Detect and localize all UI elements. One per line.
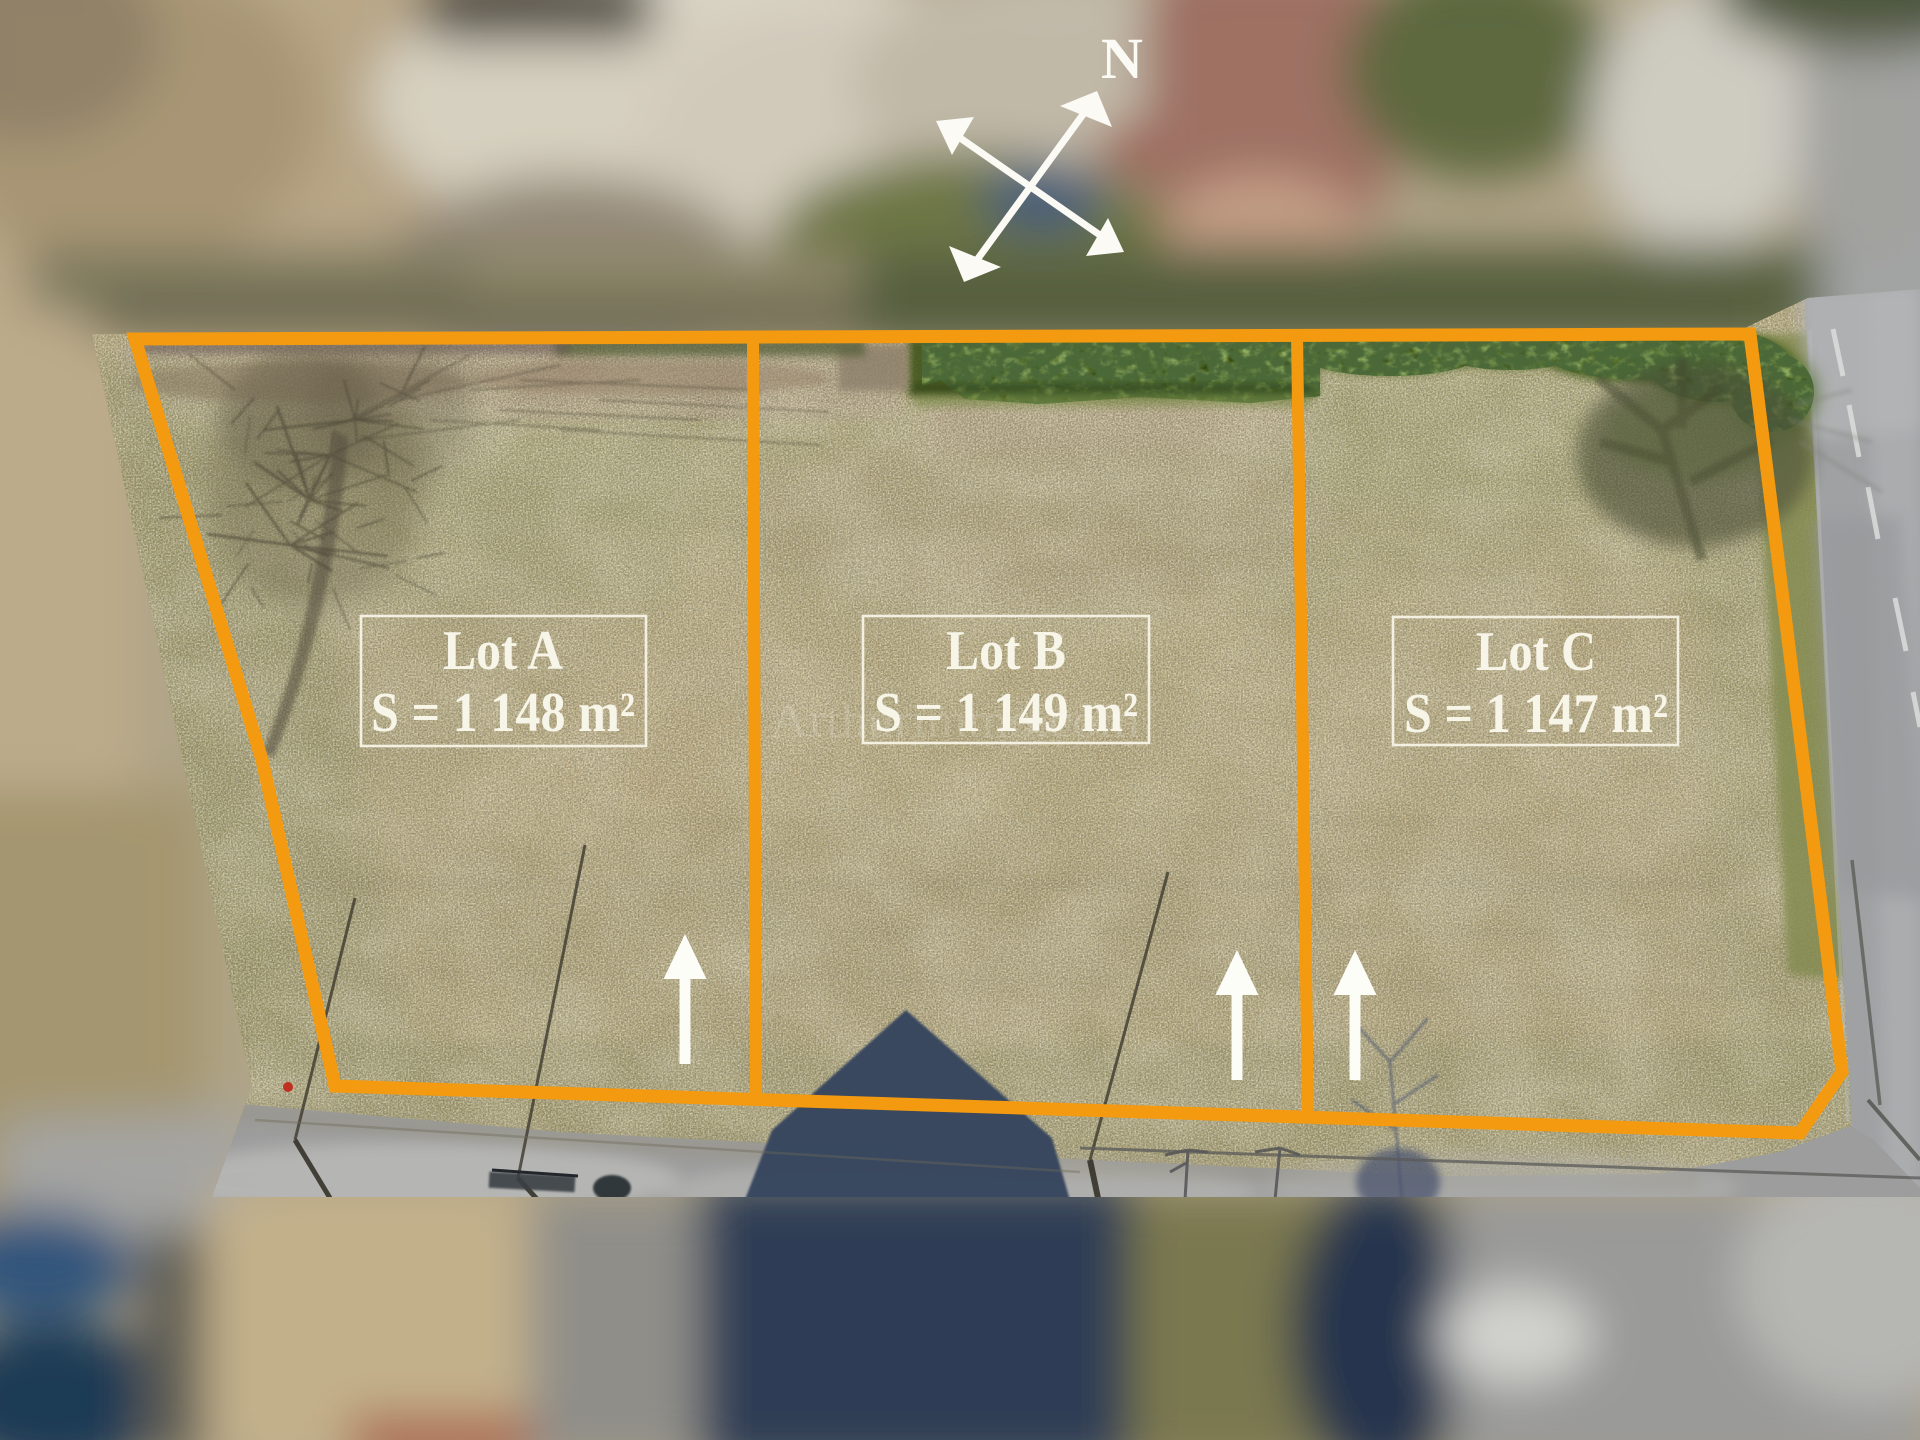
svg-text:Lot C: Lot C <box>1476 621 1596 683</box>
svg-text:Arthurimmo.com: Arthurimmo.com <box>770 692 1140 748</box>
svg-text:Lot A: Lot A <box>443 620 563 682</box>
svg-text:S = 1 148 m²: S = 1 148 m² <box>371 682 635 744</box>
svg-text:S = 1 147 m²: S = 1 147 m² <box>1404 683 1668 745</box>
svg-text:N: N <box>1101 26 1143 91</box>
svg-text:Lot B: Lot B <box>946 620 1066 682</box>
